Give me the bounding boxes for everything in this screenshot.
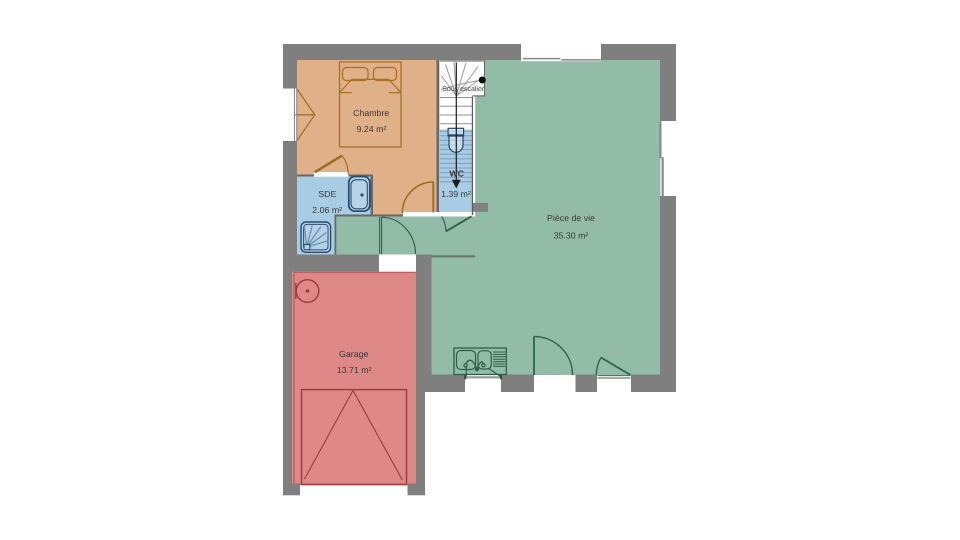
svg-text:9.24 m²: 9.24 m²	[357, 124, 387, 134]
svg-text:Chambre: Chambre	[353, 108, 389, 118]
svg-text:35.30 m²: 35.30 m²	[554, 230, 589, 240]
svg-text:Pièce de vie: Pièce de vie	[547, 213, 595, 223]
svg-text:13.71 m²: 13.71 m²	[337, 365, 372, 375]
svg-text:SDE: SDE	[318, 189, 336, 199]
svg-text:1.39 m²: 1.39 m²	[441, 189, 471, 199]
svg-text:Sous escalier: Sous escalier	[442, 85, 485, 93]
svg-text:WC: WC	[449, 168, 464, 178]
svg-text:2.06 m²: 2.06 m²	[312, 205, 342, 215]
svg-text:Garage: Garage	[339, 349, 368, 359]
